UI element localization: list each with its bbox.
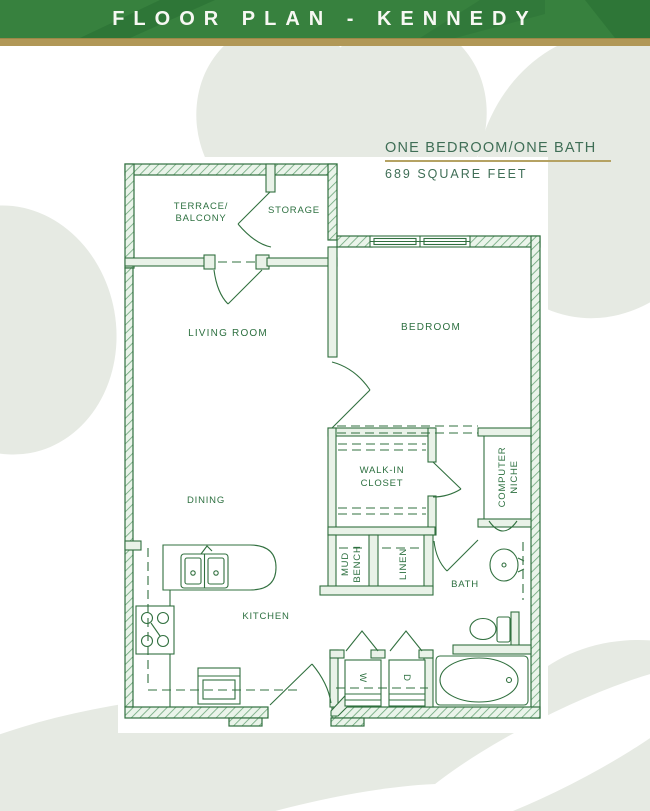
room-label-living-room: LIVING ROOM xyxy=(188,328,268,339)
room-label-bedroom: BEDROOM xyxy=(401,322,461,333)
stove xyxy=(136,606,174,654)
room-label-linen: LINEN xyxy=(398,548,409,580)
room-label-bench: BENCH xyxy=(352,545,363,582)
room-label-mud: MUD xyxy=(340,552,351,576)
plan-size-label: 689 SQUARE FEET xyxy=(385,167,611,181)
plan-type-label: ONE BEDROOM/ONE BATH xyxy=(385,140,611,162)
kitchen-cabinet xyxy=(198,668,240,704)
dryer-label: D xyxy=(401,674,412,682)
toilet xyxy=(470,617,510,642)
bedroom-windows xyxy=(370,236,470,247)
room-label-walkin: WALK-IN xyxy=(360,465,405,476)
room-label-bath: BATH xyxy=(451,579,479,590)
floorplan-drawing: TERRACE/ BALCONY STORAGE LIVING ROOM BED… xyxy=(0,0,650,811)
room-label-niche: NICHE xyxy=(509,460,520,494)
washer-label: W xyxy=(357,673,368,683)
washer xyxy=(345,660,381,706)
plan-info-block: ONE BEDROOM/ONE BATH 689 SQUARE FEET xyxy=(385,140,611,181)
dryer xyxy=(389,660,425,706)
room-label-kitchen: KITCHEN xyxy=(242,611,289,622)
room-label-storage: STORAGE xyxy=(268,205,320,216)
header-bar: FLOOR PLAN - KENNEDY xyxy=(0,0,650,38)
room-label-terrace: TERRACE/ xyxy=(174,201,228,212)
room-label-computer: COMPUTER xyxy=(497,447,508,508)
bathtub xyxy=(436,656,528,705)
room-label-dining: DINING xyxy=(187,495,225,506)
gold-divider xyxy=(0,38,650,46)
room-label-closet: CLOSET xyxy=(361,478,404,489)
room-label-balcony: BALCONY xyxy=(175,213,226,224)
page-title: FLOOR PLAN - KENNEDY xyxy=(0,0,650,38)
